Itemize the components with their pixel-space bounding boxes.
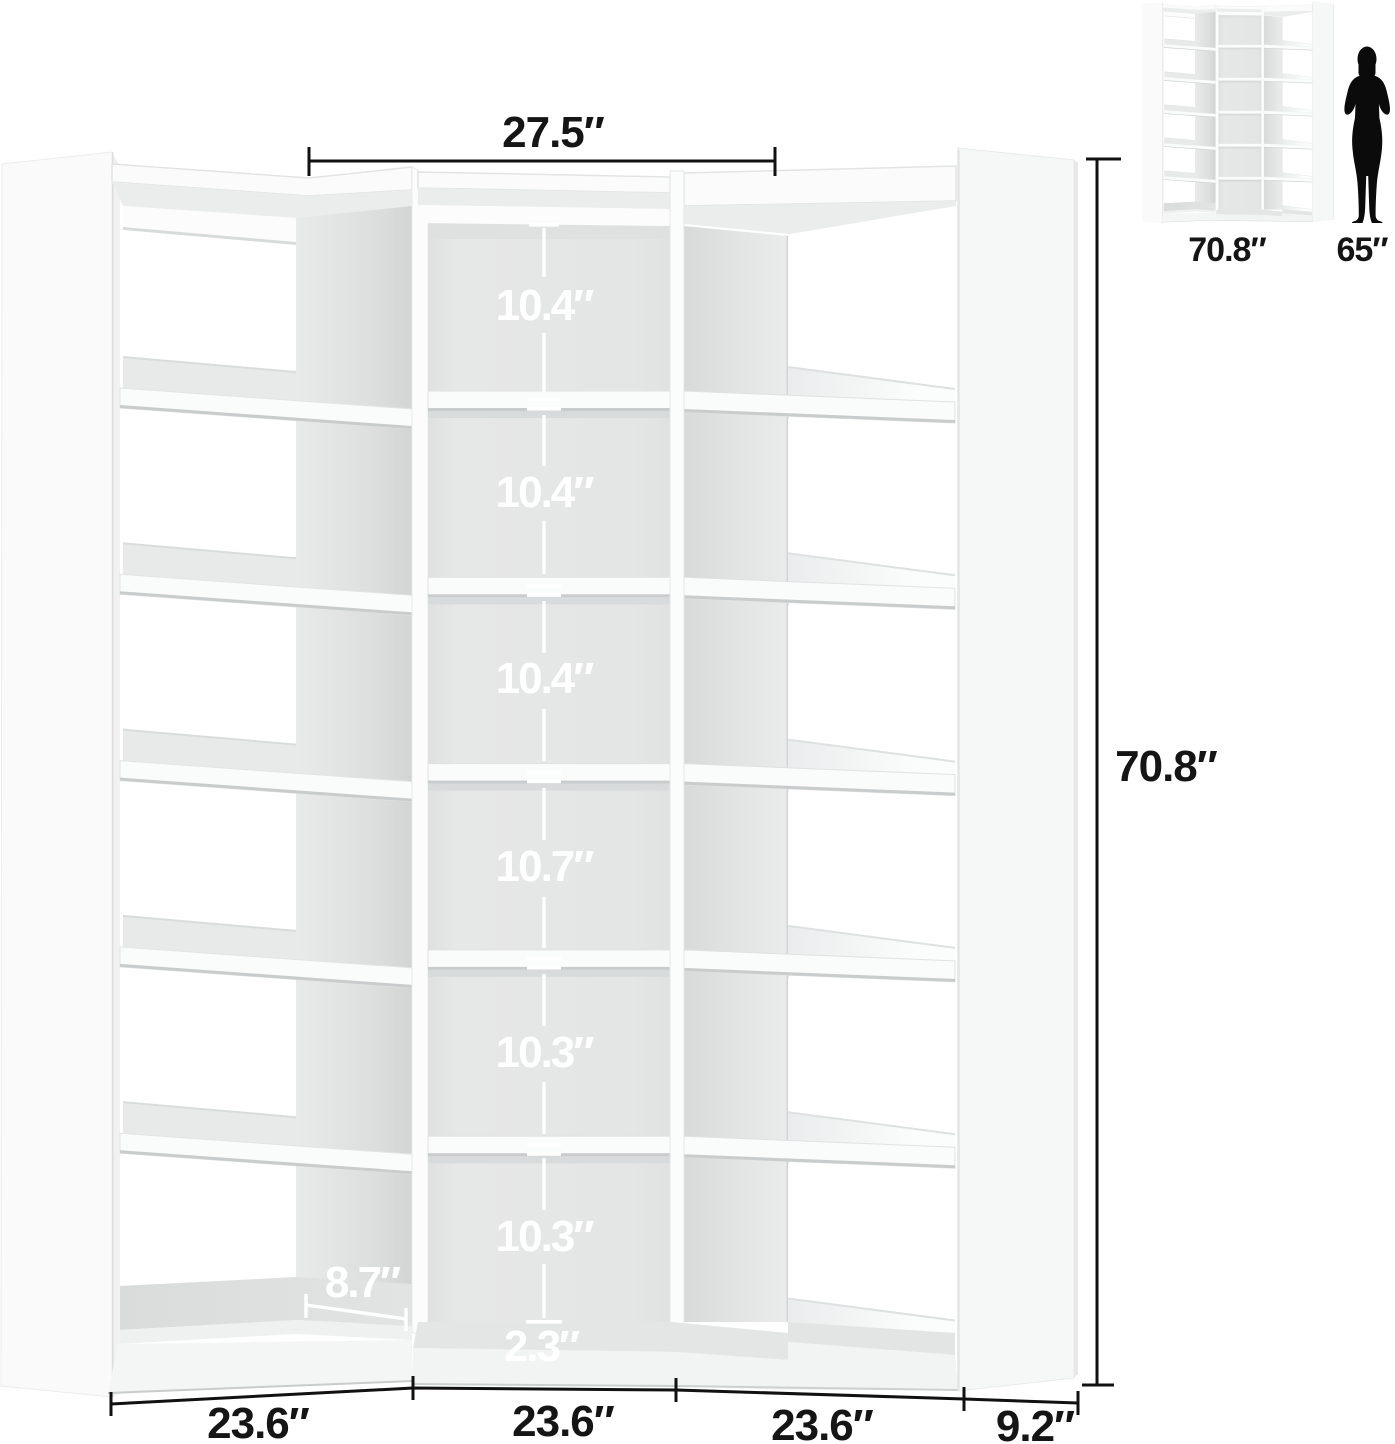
- svg-text:10.4″: 10.4″: [496, 654, 595, 703]
- svg-text:70.8″: 70.8″: [1115, 742, 1218, 791]
- svg-text:10.7″: 10.7″: [496, 842, 595, 891]
- svg-text:23.6″: 23.6″: [512, 1397, 615, 1444]
- svg-text:65″: 65″: [1336, 231, 1388, 269]
- svg-text:9.2″: 9.2″: [996, 1402, 1075, 1444]
- svg-text:70.8″: 70.8″: [1188, 231, 1266, 269]
- svg-text:2.3″: 2.3″: [504, 1322, 580, 1371]
- svg-text:10.3″: 10.3″: [496, 1028, 595, 1077]
- svg-text:27.5″: 27.5″: [502, 108, 605, 157]
- svg-text:10.4″: 10.4″: [496, 468, 595, 517]
- svg-text:23.6″: 23.6″: [207, 1399, 310, 1444]
- svg-text:10.3″: 10.3″: [496, 1212, 595, 1261]
- svg-text:23.6″: 23.6″: [771, 1401, 874, 1444]
- svg-text:8.7″: 8.7″: [325, 1258, 401, 1307]
- svg-text:10.4″: 10.4″: [496, 281, 595, 330]
